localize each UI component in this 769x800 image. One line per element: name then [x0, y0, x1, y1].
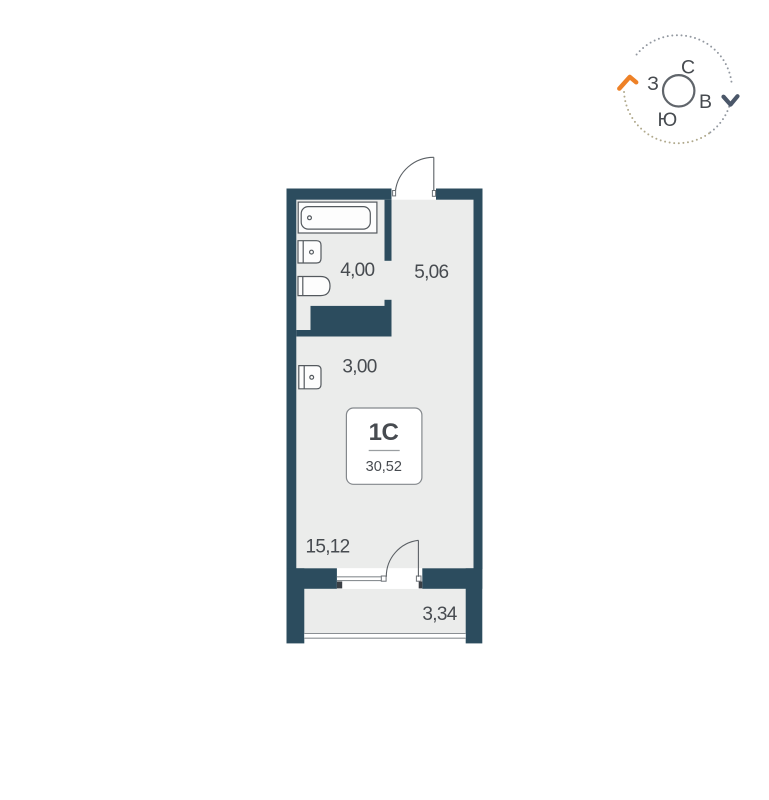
svg-text:С: С — [681, 56, 695, 78]
svg-text:1С: 1С — [369, 419, 399, 446]
svg-text:15,12: 15,12 — [305, 537, 349, 558]
svg-text:В: В — [699, 91, 712, 113]
svg-text:3,00: 3,00 — [342, 357, 376, 378]
svg-text:5,06: 5,06 — [414, 262, 448, 283]
svg-text:30,52: 30,52 — [366, 459, 402, 475]
svg-text:Ю: Ю — [657, 109, 677, 131]
svg-text:3,34: 3,34 — [422, 604, 457, 625]
svg-text:З: З — [647, 73, 659, 95]
svg-text:4,00: 4,00 — [340, 260, 374, 281]
